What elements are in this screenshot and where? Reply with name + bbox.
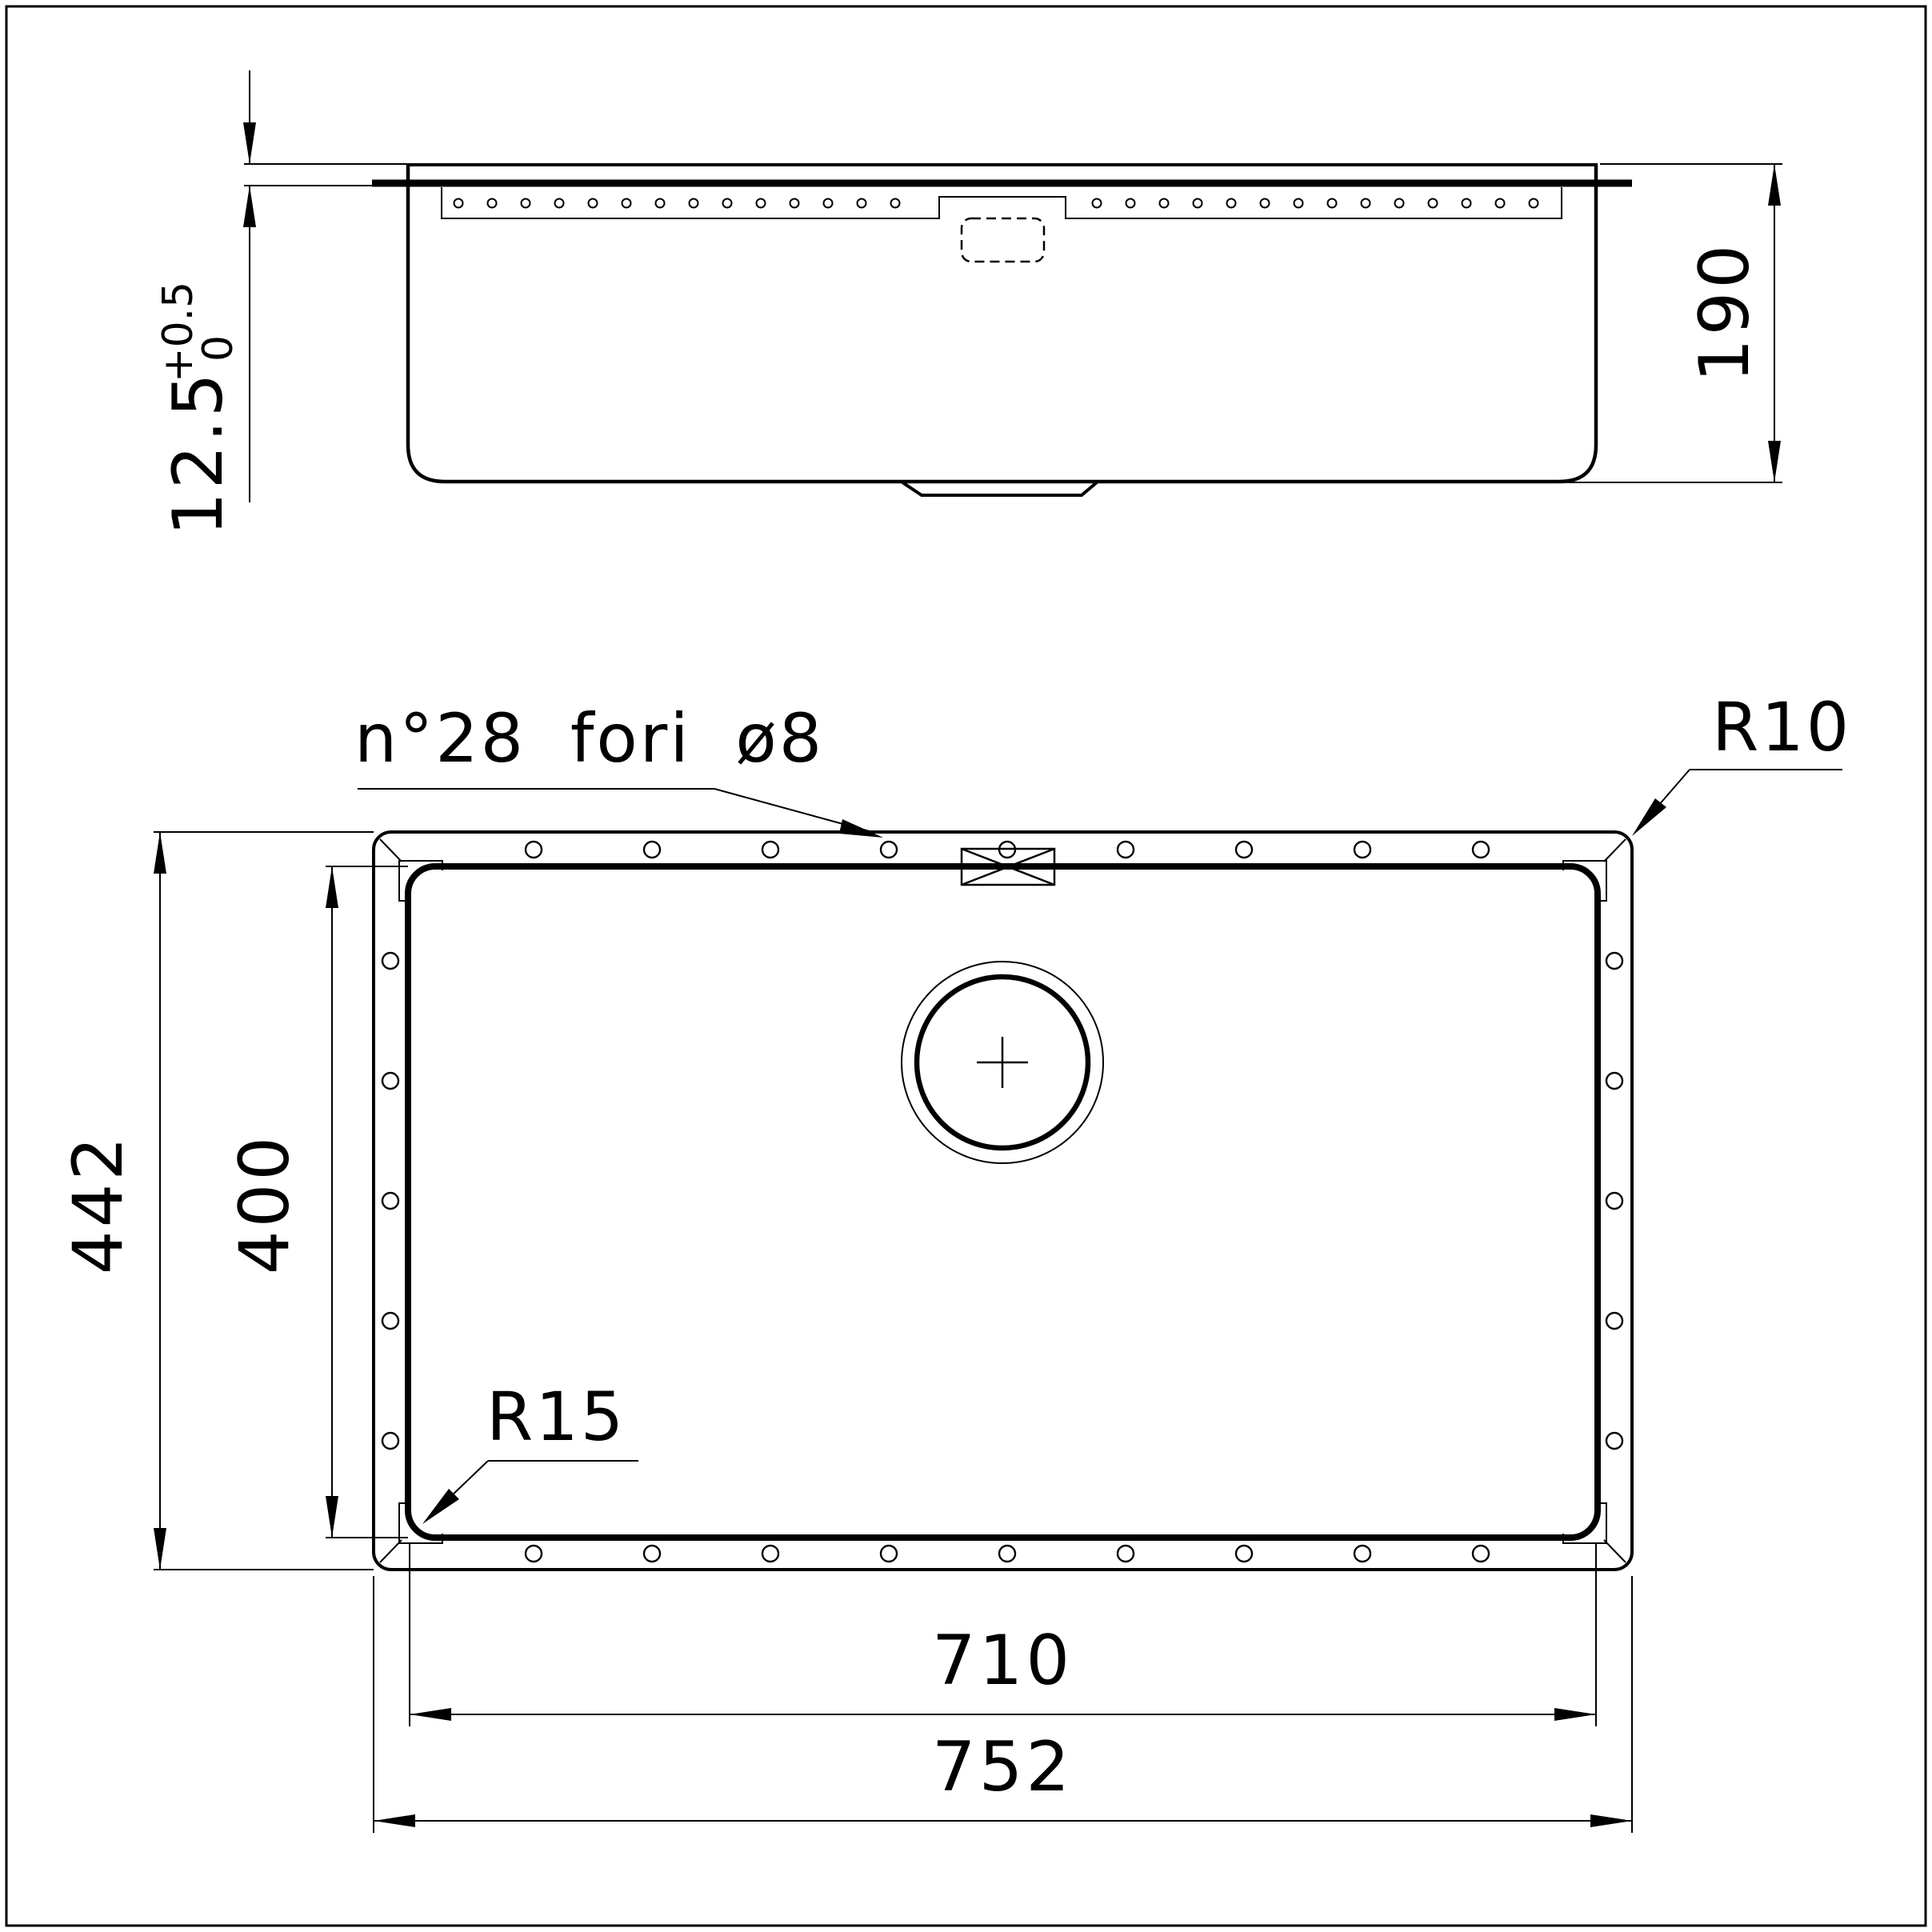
dimension-rim-height: 442 [58, 832, 374, 1570]
drain [902, 962, 1103, 1163]
arrowhead-left-icon [374, 1814, 415, 1827]
radius-rim-label: R10 [1632, 688, 1851, 836]
leader-arrowhead-icon [839, 819, 883, 838]
rim-thickness-tol-lower: 0 [194, 335, 242, 362]
front-elevation: 12.5 +0.5 0 190 [154, 70, 1782, 536]
arrowhead-down-icon [326, 1496, 338, 1538]
arrowhead-up-icon [326, 866, 338, 908]
dimension-bowl-width: 710 [410, 1544, 1596, 1726]
radius-bowl-label: R15 [422, 1378, 638, 1524]
sink-body-outline [408, 164, 1596, 482]
perforated-strip [442, 187, 1562, 218]
dimension-depth: 190 [1566, 164, 1782, 482]
rim-thickness-tol-upper: +0.5 [154, 282, 202, 382]
dimension-rim-thickness: 12.5 +0.5 0 [154, 70, 408, 536]
overflow-fitting-dashed [962, 218, 1044, 262]
rim-width-value: 752 [932, 1727, 1073, 1807]
strip-holes [454, 199, 1538, 208]
arrowhead-left-icon [410, 1708, 451, 1721]
arrowhead-up-icon [243, 186, 256, 227]
leader-arrowhead-icon [1632, 798, 1666, 836]
bowl-width-value: 710 [932, 1621, 1073, 1701]
arrowhead-down-icon [154, 1528, 166, 1570]
arrowhead-up-icon [154, 832, 166, 874]
drain-protrusion [902, 482, 1097, 495]
bowl-height-value: 400 [225, 1134, 305, 1274]
holes-note: n°28 fori ø8 [354, 699, 883, 838]
sink-technical-drawing: 12.5 +0.5 0 190 [0, 0, 1932, 1932]
dimension-bowl-height: 400 [225, 866, 408, 1538]
arrowhead-right-icon [1554, 1708, 1596, 1721]
rim-outline [374, 832, 1632, 1570]
rim-thickness-label: 12.5 +0.5 0 [154, 282, 242, 536]
depth-value: 190 [1685, 242, 1765, 382]
dimension-rim-width: 752 [374, 1576, 1632, 1833]
radius-rim-text: R10 [1712, 688, 1851, 766]
holes-note-text: n°28 fori ø8 [354, 699, 824, 778]
rim-thickness-value: 12.5 [158, 370, 238, 536]
drawing-sheet: 12.5 +0.5 0 190 [0, 0, 1932, 1932]
arrowhead-up-icon [1768, 164, 1781, 206]
leader-arrowhead-icon [422, 1489, 459, 1524]
rim-height-value: 442 [58, 1134, 138, 1274]
arrowhead-down-icon [243, 122, 256, 164]
radius-bowl-text: R15 [486, 1378, 626, 1456]
arrowhead-down-icon [1768, 441, 1781, 482]
plan-view: n°28 fori ø8 R10 R15 442 [58, 688, 1851, 1833]
arrowhead-right-icon [1590, 1814, 1632, 1827]
